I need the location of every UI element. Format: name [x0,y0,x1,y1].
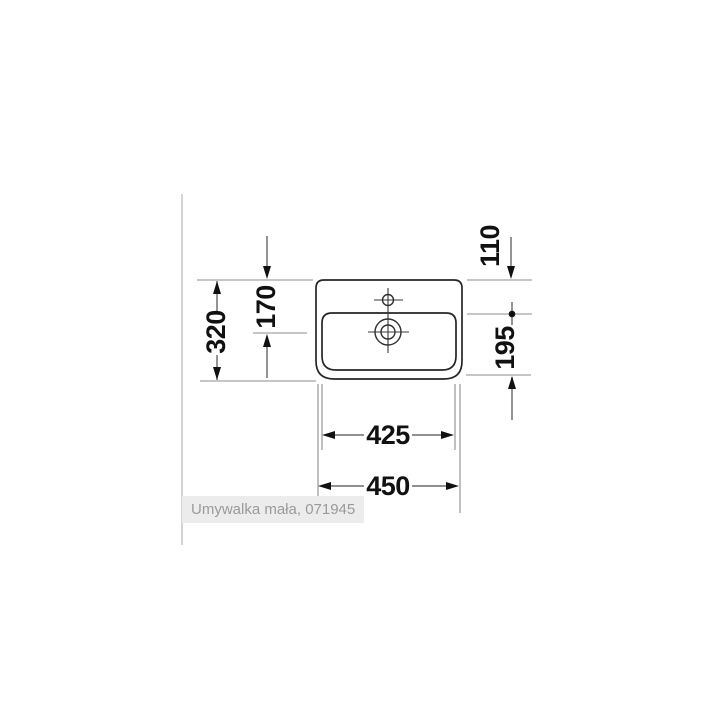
arrow-320-up-icon [213,281,221,294]
caption-bar: Umywalka mała, 071945 [182,496,364,523]
caption-text: Umywalka mała, 071945 [191,501,355,518]
dim-label-110: 110 [475,225,505,267]
arrow-170-down-icon [263,266,271,279]
dot-terminator-195 [509,311,516,318]
dim-label-425: 425 [366,420,410,450]
arrow-195-up-icon [508,376,516,389]
washbasin-technical-drawing: 320 170 110 195 425 450 [0,0,720,720]
arrow-450-left-icon [318,482,331,490]
product-dimension-sheet: 320 170 110 195 425 450 Umywalka mała, 0… [0,0,720,720]
arrow-320-down-icon [213,367,221,380]
dim-label-195: 195 [490,326,520,370]
arrow-425-right-icon [441,431,454,439]
dim-label-320: 320 [201,310,231,354]
arrow-425-left-icon [322,431,335,439]
arrow-450-right-icon [446,482,459,490]
arrow-110-down-icon [507,266,515,279]
arrow-170-up-icon [263,334,271,347]
dim-label-450: 450 [366,471,410,501]
dim-label-170: 170 [251,285,281,329]
